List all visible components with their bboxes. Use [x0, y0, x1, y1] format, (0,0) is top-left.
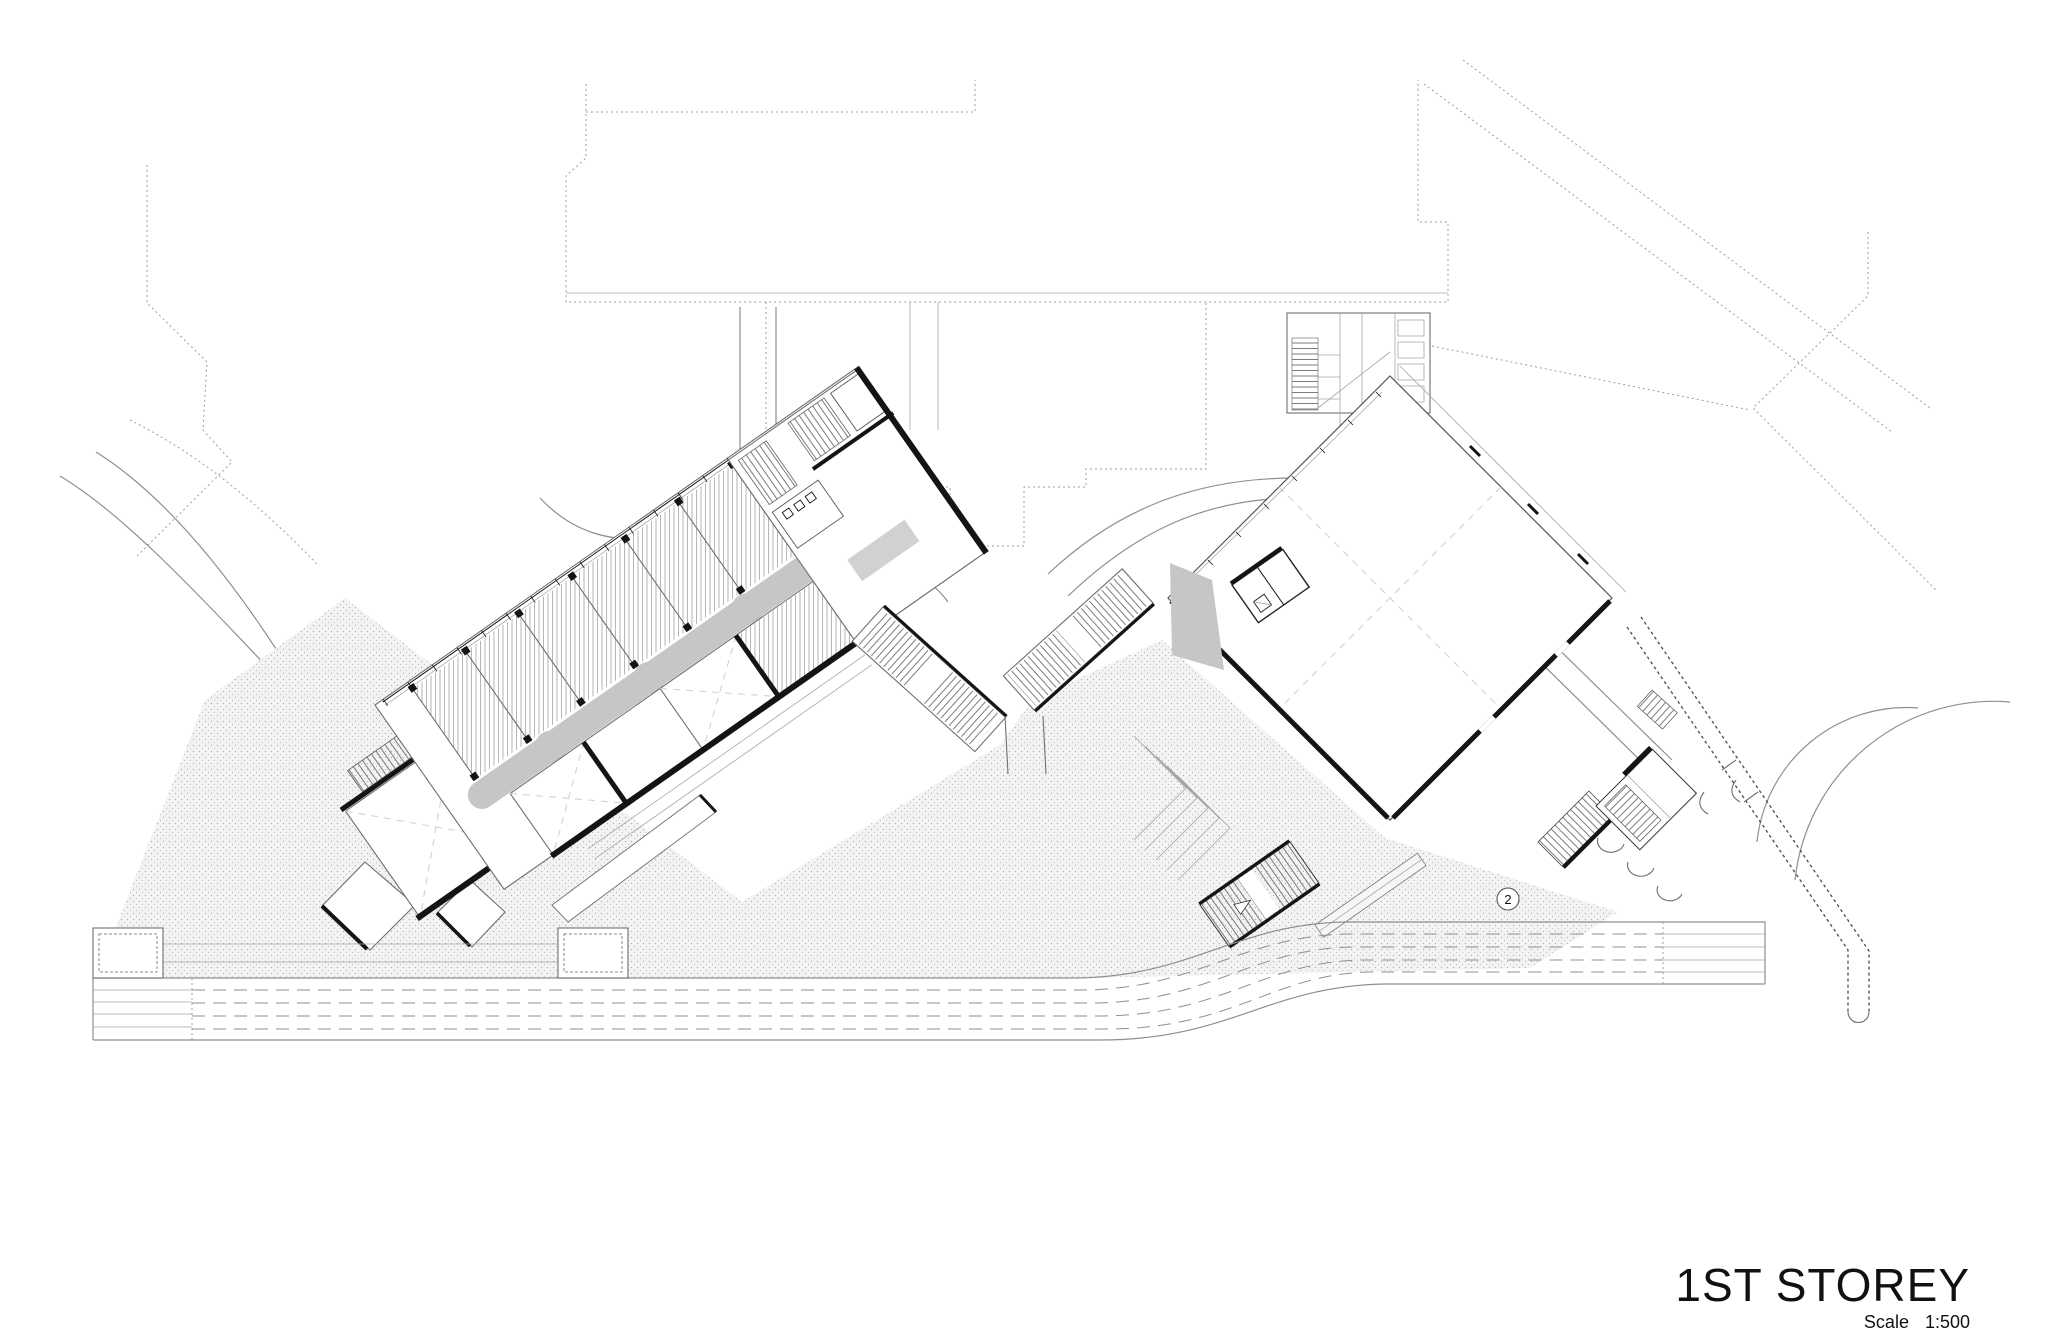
grand-stair-left-flight — [852, 605, 1007, 752]
road-bottom-edge — [93, 984, 1765, 1040]
stair-core-escalator — [1292, 338, 1318, 410]
context-arc-left — [130, 420, 318, 565]
floor-plan-sheet: 2 1ST STOREY Scale1 — [0, 0, 2048, 1343]
shelter-left-outline — [93, 928, 163, 978]
se-annex — [1592, 746, 1696, 850]
plan-title: 1ST STOREY — [1675, 1261, 1970, 1309]
turnaround-arc-2 — [1795, 701, 2010, 880]
scale-value: 1:500 — [1925, 1312, 1970, 1332]
road-left-inner — [60, 476, 268, 668]
context-building-right-chevron — [1753, 232, 1936, 590]
context-diagonal-right-1 — [1424, 84, 1892, 432]
context-building-left — [135, 165, 232, 558]
lane-line-4 — [192, 972, 1663, 1029]
shelter-right-outline — [558, 928, 628, 978]
pier-root-stair — [1637, 690, 1677, 729]
context-diagonal-right-2 — [1463, 60, 1930, 408]
context-outlines — [130, 60, 1936, 590]
shelter-right — [558, 928, 628, 978]
plan-scale: Scale1:500 — [1675, 1312, 1970, 1333]
road-left-solid-lines — [93, 990, 192, 1027]
context-link-diagonal — [1432, 346, 1750, 410]
context-building-top — [566, 80, 1448, 302]
shelter-left — [93, 928, 163, 978]
title-block: 1ST STOREY Scale1:500 — [1675, 1261, 1970, 1333]
floor-plan-svg: 2 — [0, 0, 2048, 1343]
scale-label: Scale — [1864, 1312, 1909, 1332]
grid-bubble-2-label: 2 — [1504, 892, 1511, 907]
pier-root-stair-treads — [1637, 690, 1677, 729]
pier-end-arc — [1848, 1012, 1869, 1023]
context-building-top-edge — [586, 80, 975, 112]
road-right-solid-lines — [1663, 934, 1765, 972]
